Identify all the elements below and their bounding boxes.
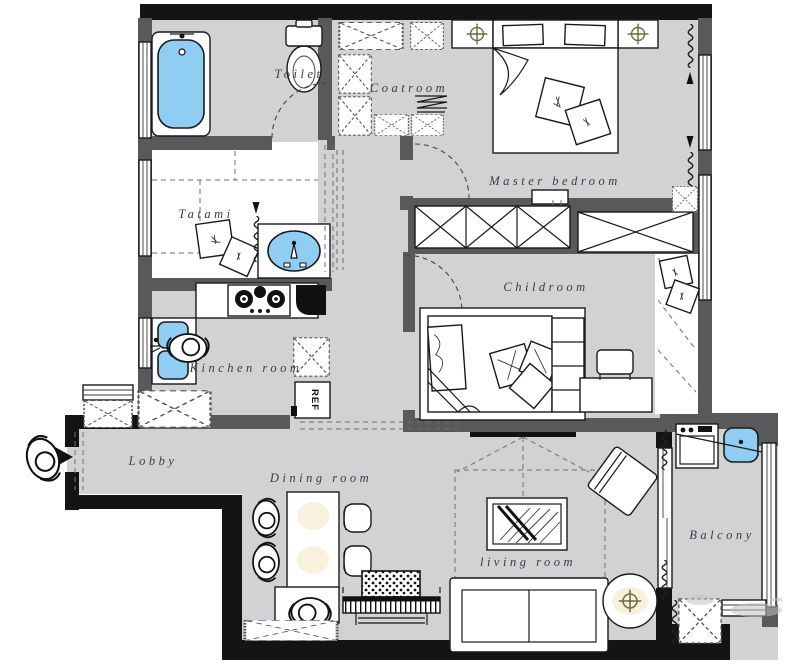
- label-toilet: Toilet: [274, 67, 323, 81]
- label-kitchen: Kinchen room: [189, 361, 303, 375]
- toilet: [286, 20, 322, 92]
- label-balcony: Balcony: [689, 528, 754, 542]
- window-left-tatami: [139, 160, 151, 256]
- corner-shelf: [655, 254, 699, 414]
- balcony-door-slider: [658, 448, 672, 588]
- label-coatroom: Coatroom: [370, 81, 448, 95]
- person-figure: [253, 543, 279, 582]
- label-living: living room: [480, 555, 576, 569]
- wardrobe: [415, 206, 693, 252]
- person-figure: [253, 499, 279, 538]
- label-dining: Dining room: [269, 471, 372, 485]
- window-right-master: [699, 55, 711, 150]
- balcony-cabinet: [672, 599, 721, 644]
- dining-table: [287, 492, 339, 588]
- sofa: [450, 578, 608, 652]
- window-left-kitchen: [139, 318, 151, 368]
- floor-plan-canvas: Toilet Coatroom Master bedroom: [0, 0, 800, 665]
- corner-counter: [296, 285, 326, 315]
- bench: [532, 190, 568, 204]
- side-table: [603, 574, 657, 628]
- label-tatami: Tatami: [178, 207, 233, 221]
- floor-plan-drawing: Toilet Coatroom Master bedroom: [0, 0, 800, 665]
- person-figure: [21, 432, 66, 486]
- refrigerator: REF: [291, 382, 330, 418]
- master-bed: [493, 20, 618, 153]
- label-childroom: Childroom: [503, 280, 588, 294]
- label-ref: REF: [309, 389, 320, 411]
- bathtub: [152, 32, 210, 136]
- person-figure: [167, 334, 209, 362]
- window-left-bath: [139, 42, 151, 138]
- lobby-cabinets: [83, 385, 211, 427]
- coffee-table: [487, 498, 567, 550]
- wash-basin: [258, 224, 330, 278]
- label-master-bedroom: Master bedroom: [488, 174, 621, 188]
- label-lobby: Lobby: [128, 454, 178, 468]
- child-bed: [420, 308, 585, 420]
- dining-chair: [344, 504, 371, 532]
- washing-machine: [676, 424, 718, 468]
- window-right-child: [699, 175, 711, 300]
- stove: [228, 285, 290, 316]
- window-balcony-right: [762, 443, 776, 607]
